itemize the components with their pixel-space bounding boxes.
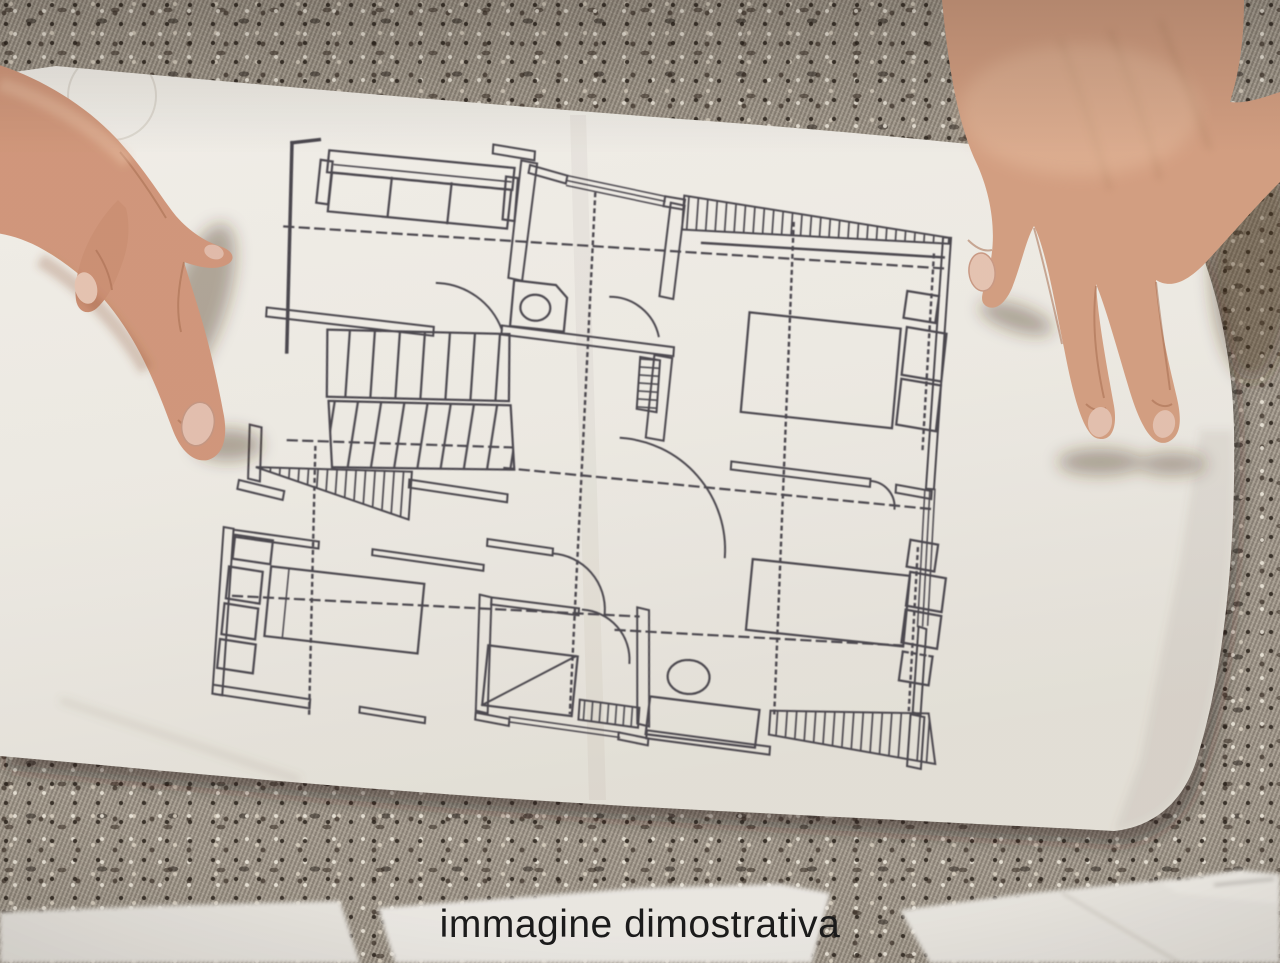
loose-paper-left [0, 901, 360, 963]
ladder-hatch [637, 357, 661, 412]
photo-art [0, 0, 1280, 963]
stair-flight-lower [324, 393, 519, 480]
photo-scene: immagine dimostrativa [0, 0, 1280, 963]
right-hand-highlight [960, 44, 1200, 176]
stair-flight-upper [323, 322, 514, 409]
caption: immagine dimostrativa [440, 903, 841, 947]
